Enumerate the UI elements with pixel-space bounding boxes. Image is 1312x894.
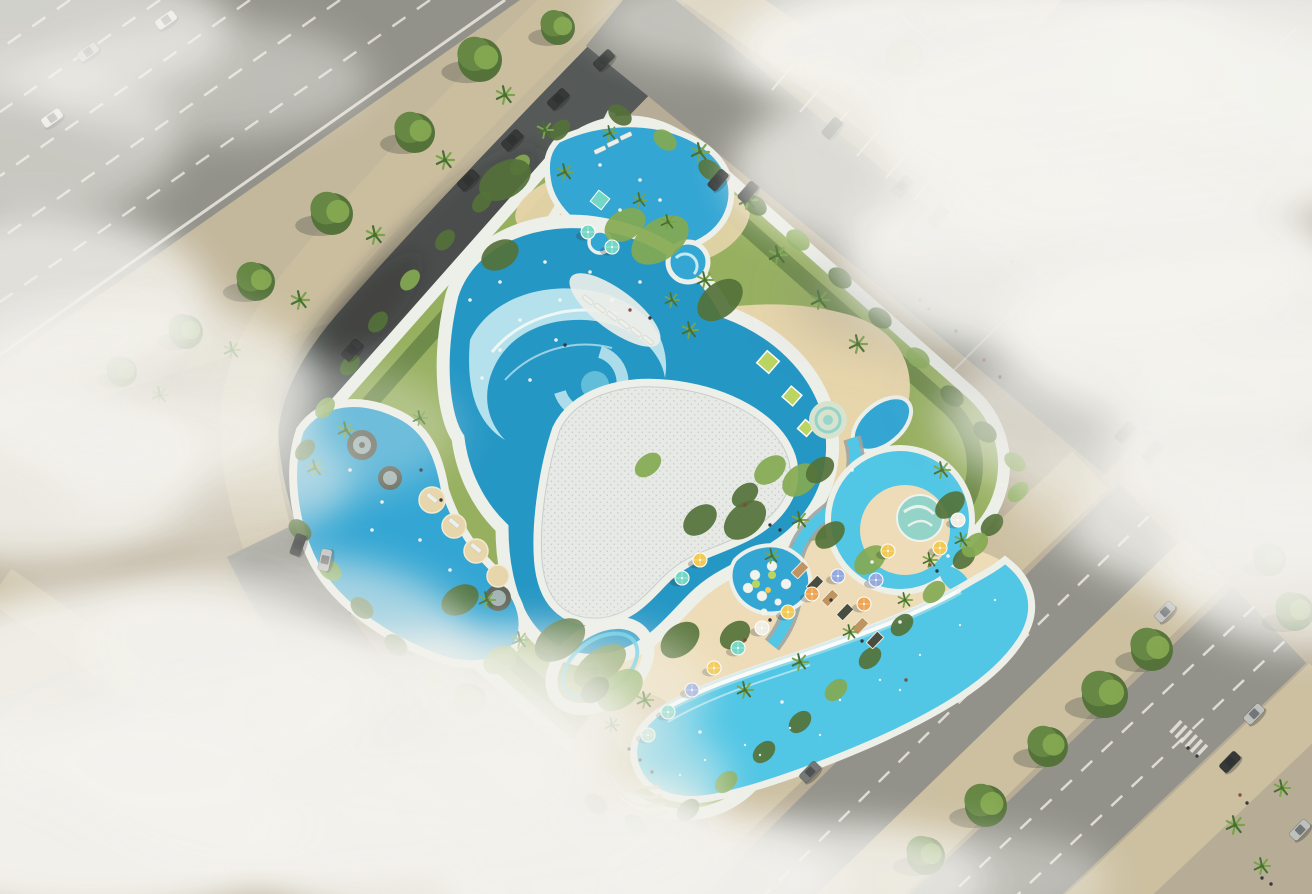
warm-tint-overlay (0, 0, 1312, 894)
scene-canvas (0, 0, 1312, 894)
aerial-render (0, 0, 1312, 894)
